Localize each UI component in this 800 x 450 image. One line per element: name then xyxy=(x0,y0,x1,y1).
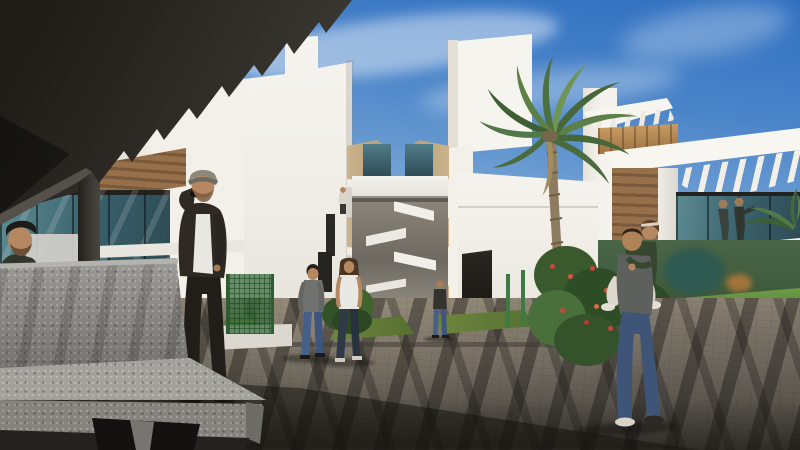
bridge-shadow xyxy=(352,196,448,202)
architectural-render-scene xyxy=(0,0,800,450)
garden-orange-accent xyxy=(726,274,752,292)
balcony-glass xyxy=(363,144,391,178)
left-building-window xyxy=(326,214,335,256)
phone-man-shirt xyxy=(193,214,213,274)
piggyback-man-legs xyxy=(617,312,660,418)
balcony-person xyxy=(336,186,350,216)
walking-woman xyxy=(327,257,371,369)
rooftop-person-a-head xyxy=(719,200,728,209)
balcony-glass xyxy=(405,144,433,178)
man-in-alley xyxy=(427,279,453,343)
piggyback-couple xyxy=(588,212,676,438)
connecting-bridge xyxy=(352,176,448,198)
piggyback-woman-hand xyxy=(629,264,636,271)
piggyback-man-shoe xyxy=(644,416,664,425)
right-tower-shade xyxy=(448,40,458,152)
piggyback-man-shoe xyxy=(615,418,635,427)
red-flowers xyxy=(550,264,555,269)
small-palm-fronds xyxy=(742,196,800,256)
piggyback-woman-shoe xyxy=(601,303,615,311)
phone-man-hand xyxy=(214,265,221,272)
bench-backrest-shading xyxy=(0,254,192,378)
palm-fronds xyxy=(478,55,640,196)
